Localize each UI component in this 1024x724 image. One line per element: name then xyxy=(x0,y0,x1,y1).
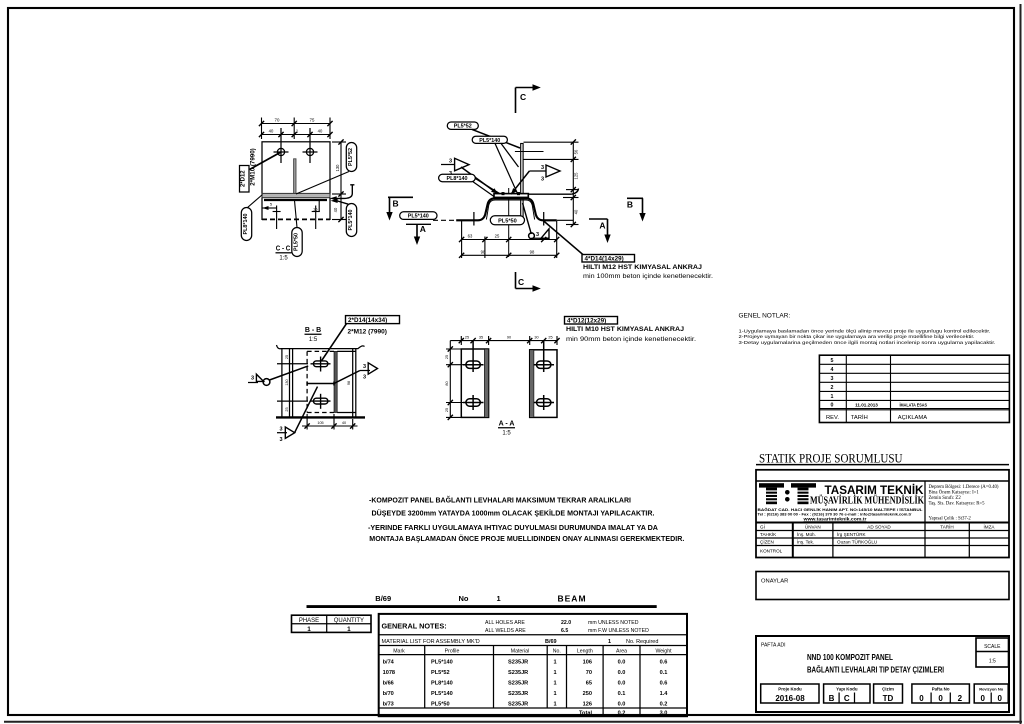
svg-text:11.01.2013: 11.01.2013 xyxy=(855,402,878,407)
svg-text:Yapı Kodu: Yapı Kodu xyxy=(836,687,858,692)
svg-text:SCALE: SCALE xyxy=(984,644,1001,650)
svg-text:GENERAL NOTES:: GENERAL NOTES: xyxy=(382,622,447,631)
svg-text:AÇIKLAMA: AÇIKLAMA xyxy=(898,415,927,421)
svg-text:56: 56 xyxy=(574,149,579,154)
svg-text:2*M12 (7990): 2*M12 (7990) xyxy=(348,329,387,336)
svg-text:-YERINDE FARKLI UYGULAMAYA IHT: -YERINDE FARKLI UYGULAMAYA IHTIYAC DUYUL… xyxy=(368,525,658,532)
svg-text:98: 98 xyxy=(347,381,351,385)
svg-text:65: 65 xyxy=(586,681,592,687)
svg-text:PL5*52: PL5*52 xyxy=(348,148,354,166)
svg-text:25: 25 xyxy=(445,355,449,359)
svg-text:PL5*52: PL5*52 xyxy=(431,670,450,676)
svg-text:İrg ŞENTÜRK: İrg ŞENTÜRK xyxy=(837,531,867,537)
svg-text:1: 1 xyxy=(608,639,611,645)
svg-text:0.1: 0.1 xyxy=(660,670,668,676)
svg-text:1: 1 xyxy=(553,660,556,666)
svg-text:mm F.W UNLESS NOTED: mm F.W UNLESS NOTED xyxy=(588,628,649,634)
svg-text:1078: 1078 xyxy=(383,670,395,676)
svg-text:106: 106 xyxy=(583,660,592,666)
svg-text:B: B xyxy=(627,200,633,210)
svg-text:Bina Önem Katsayısı: I=1: Bina Önem Katsayısı: I=1 xyxy=(929,490,980,496)
svg-text:3: 3 xyxy=(280,437,283,443)
svg-text:0.0: 0.0 xyxy=(618,660,626,666)
svg-text:PL5*140: PL5*140 xyxy=(431,691,453,697)
svg-text:C - C: C - C xyxy=(276,246,291,253)
svg-text:HILTI M10 HST KIMYASAL ANKRAJ: HILTI M10 HST KIMYASAL ANKRAJ xyxy=(566,326,685,333)
svg-text:PL8*140: PL8*140 xyxy=(447,176,468,182)
svg-text:15: 15 xyxy=(313,207,318,212)
svg-text:2*M10 (7990): 2*M10 (7990) xyxy=(250,148,257,186)
svg-text:0: 0 xyxy=(919,694,924,703)
svg-text:B/69: B/69 xyxy=(375,594,391,603)
svg-text:QUANTITY: QUANTITY xyxy=(334,618,364,624)
svg-text:PL8*140: PL8*140 xyxy=(243,214,249,235)
svg-text:70: 70 xyxy=(275,118,280,123)
svg-text:S235JR: S235JR xyxy=(508,670,528,676)
svg-text:B: B xyxy=(393,199,399,209)
svg-text:İnş. Müh.: İnş. Müh. xyxy=(797,531,816,537)
svg-text:0: 0 xyxy=(831,402,834,408)
svg-text:1:5: 1:5 xyxy=(309,337,318,343)
svg-text:PL5*50: PL5*50 xyxy=(431,702,450,708)
svg-text:Material: Material xyxy=(511,648,529,654)
svg-text:40: 40 xyxy=(269,129,274,134)
svg-text:75: 75 xyxy=(310,118,315,123)
svg-text:22.0: 22.0 xyxy=(561,620,571,626)
svg-text:0: 0 xyxy=(980,694,985,703)
svg-text:İMZA: İMZA xyxy=(984,523,996,529)
svg-text:A: A xyxy=(599,221,605,231)
svg-text:40: 40 xyxy=(318,129,323,134)
svg-text:63: 63 xyxy=(468,234,473,239)
svg-text:Profile: Profile xyxy=(445,648,460,654)
svg-text:BEAM: BEAM xyxy=(558,594,587,604)
svg-text:PL5*140: PL5*140 xyxy=(348,210,354,231)
svg-text:PL5*50: PL5*50 xyxy=(498,219,517,225)
svg-text:0.0: 0.0 xyxy=(618,702,626,708)
svg-text:1: 1 xyxy=(553,702,556,708)
svg-text:Mark: Mark xyxy=(393,648,405,654)
svg-text:PL8*140: PL8*140 xyxy=(431,681,453,687)
svg-text:40: 40 xyxy=(342,421,346,425)
svg-text:90: 90 xyxy=(507,336,511,340)
svg-text:125: 125 xyxy=(574,172,579,180)
svg-text:1: 1 xyxy=(307,626,311,633)
svg-text:130: 130 xyxy=(335,164,340,172)
svg-text:3: 3 xyxy=(280,427,283,433)
svg-text:TARİH: TARİH xyxy=(940,523,953,529)
svg-text:ALL WELDS ARE: ALL WELDS ARE xyxy=(485,628,526,634)
svg-text:3: 3 xyxy=(363,375,366,381)
svg-text:PL5*52: PL5*52 xyxy=(454,124,472,130)
svg-text:MÜŞAVİRLİK MÜHENDİSLİK: MÜŞAVİRLİK MÜHENDİSLİK xyxy=(810,493,924,506)
svg-text:2: 2 xyxy=(831,385,834,391)
svg-text:STATIK PROJE SORUMLUSU: STATIK PROJE SORUMLUSU xyxy=(759,451,903,466)
svg-text:TARİH: TARİH xyxy=(851,414,868,421)
svg-text:6.5: 6.5 xyxy=(561,628,568,634)
svg-text:3: 3 xyxy=(251,376,254,382)
svg-text:0: 0 xyxy=(997,694,1002,703)
svg-text:b/73: b/73 xyxy=(383,702,394,708)
svg-text:Area: Area xyxy=(616,648,627,654)
svg-text:Yapısal Çelik : St37-2: Yapısal Çelik : St37-2 xyxy=(929,517,972,522)
svg-text:25: 25 xyxy=(445,408,449,412)
svg-text:ÜNVAN: ÜNVAN xyxy=(805,523,821,529)
svg-text:2: 2 xyxy=(958,694,963,703)
svg-text:b/70: b/70 xyxy=(383,691,394,697)
svg-text:PL5*140: PL5*140 xyxy=(479,138,500,144)
svg-text:80: 80 xyxy=(445,381,449,385)
svg-text:3: 3 xyxy=(541,177,544,183)
svg-text:PHASE: PHASE xyxy=(299,618,319,624)
svg-text:3.0: 3.0 xyxy=(660,710,668,716)
svg-text:1.4: 1.4 xyxy=(660,691,669,697)
svg-text:Zemin Sınıfı: Z2: Zemin Sınıfı: Z2 xyxy=(929,496,962,501)
svg-text:NND 100 KOMPOZIT PANEL: NND 100 KOMPOZIT PANEL xyxy=(807,653,893,662)
svg-text:0.6: 0.6 xyxy=(660,660,668,666)
svg-text:1: 1 xyxy=(553,691,556,697)
svg-text:2*D14(14x34): 2*D14(14x34) xyxy=(348,317,387,324)
svg-text:70: 70 xyxy=(586,670,592,676)
svg-text:0.0: 0.0 xyxy=(618,681,626,687)
svg-text:GENEL NOTLAR:: GENEL NOTLAR: xyxy=(739,313,791,320)
svg-text:S235JR: S235JR xyxy=(508,660,528,666)
svg-text:www.tasarimteknik.com.tr: www.tasarimteknik.com.tr xyxy=(802,516,866,521)
svg-text:4*D14(14x29): 4*D14(14x29) xyxy=(585,256,624,263)
svg-text:0.0: 0.0 xyxy=(618,670,626,676)
svg-text:PAFTA ADI: PAFTA ADI xyxy=(761,643,786,649)
svg-text:1: 1 xyxy=(347,626,351,633)
svg-text:1: 1 xyxy=(831,394,834,400)
svg-text:MATERIAL LIST FOR ASSEMBLY MK': MATERIAL LIST FOR ASSEMBLY MK'D xyxy=(382,639,480,645)
svg-text:b/74: b/74 xyxy=(383,660,395,666)
svg-text:İnş. Tek.: İnş. Tek. xyxy=(797,539,814,545)
svg-text:No: No xyxy=(459,594,469,603)
svg-text:REV.: REV. xyxy=(826,415,839,421)
svg-text:0.1: 0.1 xyxy=(618,691,626,697)
svg-text:A: A xyxy=(420,224,426,234)
svg-text:1:5: 1:5 xyxy=(502,431,511,437)
svg-text:0.2: 0.2 xyxy=(660,702,668,708)
svg-text:0.2: 0.2 xyxy=(618,710,626,716)
svg-text:HILTI M12 HST KIMYASAL ANKRAJ: HILTI M12 HST KIMYASAL ANKRAJ xyxy=(583,264,703,271)
svg-text:250: 250 xyxy=(583,691,592,697)
svg-text:3: 3 xyxy=(831,376,834,382)
svg-text:İMALATA ESAS: İMALATA ESAS xyxy=(900,401,928,407)
svg-text:No.: No. xyxy=(553,648,561,654)
svg-text:1-Uygulamaya baslamadan önce y: 1-Uygulamaya baslamadan önce yerinde ölç… xyxy=(739,328,991,334)
svg-text:Length: Length xyxy=(577,648,593,654)
svg-text:min 90mm beton içinde kenetlen: min 90mm beton içinde kenetlenecektir. xyxy=(566,336,696,343)
svg-text:C: C xyxy=(520,92,526,102)
svg-text:126: 126 xyxy=(583,702,592,708)
svg-text:Proje Kodu: Proje Kodu xyxy=(778,687,802,692)
svg-text:4: 4 xyxy=(831,367,834,373)
svg-text:PL5*140: PL5*140 xyxy=(408,214,429,220)
svg-text:min 100mm beton içinde kenetle: min 100mm beton içinde kenetlenecektir. xyxy=(583,273,713,280)
svg-text:Çizim: Çizim xyxy=(882,687,894,692)
svg-text:No. Required: No. Required xyxy=(626,639,658,645)
svg-text:ALL HOLES ARE: ALL HOLES ARE xyxy=(485,620,525,626)
svg-text:1:5: 1:5 xyxy=(279,256,288,262)
svg-text:5: 5 xyxy=(831,358,834,364)
svg-text:25: 25 xyxy=(285,407,289,411)
svg-text:25: 25 xyxy=(285,355,289,359)
svg-text:2-Projeye uymayan bir nokta ç: 2-Projeye uymayan bir nokta çikar ise uy… xyxy=(739,334,975,340)
svg-text:Pafta No: Pafta No xyxy=(932,687,950,692)
svg-text:1:5: 1:5 xyxy=(989,659,996,665)
svg-text:ONAYLAR: ONAYLAR xyxy=(761,579,788,585)
svg-text:B: B xyxy=(829,694,835,703)
svg-text:Taş. Sis. Dav. Katsayısı: R=5: Taş. Sis. Dav. Katsayısı: R=5 xyxy=(929,502,986,507)
svg-text:DÜŞEYDE 3200mm YATAYDA 1000mm: DÜŞEYDE 3200mm YATAYDA 1000mm OLACAK ŞEK… xyxy=(372,509,655,518)
svg-text:mm UNLESS NOTED: mm UNLESS NOTED xyxy=(588,620,639,626)
svg-text:1: 1 xyxy=(497,594,501,603)
svg-text:40: 40 xyxy=(333,207,338,212)
svg-text:3: 3 xyxy=(449,159,452,165)
svg-text:105: 105 xyxy=(317,421,323,425)
svg-text:MONTAJA BAŞLAMADAN ÖNCE PROJE: MONTAJA BAŞLAMADAN ÖNCE PROJE MUELLIDIND… xyxy=(369,534,684,543)
svg-text:Gİ: Gİ xyxy=(760,523,765,529)
svg-text:BAĞLANTI LEVHALARI TIP DETAY Ç: BAĞLANTI LEVHALARI TIP DETAY ÇIZIMLERI xyxy=(807,664,944,675)
svg-text:40: 40 xyxy=(574,209,579,214)
svg-text:Ouzan TÜRKOĞLU: Ouzan TÜRKOĞLU xyxy=(837,539,877,545)
svg-text:130: 130 xyxy=(285,379,289,385)
svg-text:1: 1 xyxy=(553,681,556,687)
svg-text:-KOMPOZIT PANEL BAĞLANTI LEVH: -KOMPOZIT PANEL BAĞLANTI LEVHALARI MAKSI… xyxy=(369,496,631,505)
svg-text:ÇİZEN: ÇİZEN xyxy=(760,539,774,545)
svg-text:3: 3 xyxy=(363,364,366,370)
svg-text:2*D12: 2*D12 xyxy=(241,170,247,187)
svg-text:35: 35 xyxy=(479,336,483,340)
svg-text:3: 3 xyxy=(536,232,539,238)
svg-text:TD: TD xyxy=(883,694,894,703)
svg-text:25: 25 xyxy=(495,234,500,239)
svg-text:PL5*50: PL5*50 xyxy=(293,233,299,251)
svg-text:4*D12(12x29): 4*D12(12x29) xyxy=(567,318,606,325)
svg-text:C: C xyxy=(844,694,850,703)
svg-text:98: 98 xyxy=(530,249,535,254)
svg-text:3-Detay uygulamalarina geçilme: 3-Detay uygulamalarina geçilmeden önce i… xyxy=(739,340,996,346)
svg-text:A - A: A - A xyxy=(499,421,515,428)
svg-text:Weight: Weight xyxy=(655,648,672,654)
svg-text:C: C xyxy=(518,277,524,287)
svg-text:3: 3 xyxy=(541,165,544,171)
svg-text:0: 0 xyxy=(938,694,943,703)
svg-text:1: 1 xyxy=(553,670,556,676)
svg-text:S235JR: S235JR xyxy=(508,691,528,697)
svg-text:S235JR: S235JR xyxy=(508,702,528,708)
svg-text:2016-08: 2016-08 xyxy=(775,694,805,703)
svg-text:S235JR: S235JR xyxy=(508,681,528,687)
svg-text:PL5*140: PL5*140 xyxy=(431,660,453,666)
svg-text:KONTROL: KONTROL xyxy=(760,549,783,554)
svg-text:B - B: B - B xyxy=(305,327,321,334)
svg-text:25: 25 xyxy=(465,336,469,340)
svg-text:b/66: b/66 xyxy=(383,681,394,687)
svg-text:Deprem Bölgesi: 1.Derece (A=0.: Deprem Bölgesi: 1.Derece (A=0.40) xyxy=(929,485,999,490)
svg-text:B/69: B/69 xyxy=(545,639,557,645)
svg-text:TAHKİK: TAHKİK xyxy=(760,531,777,537)
svg-text:0.6: 0.6 xyxy=(660,681,668,687)
svg-text:25: 25 xyxy=(548,336,552,340)
svg-text:Total: Total xyxy=(579,710,592,716)
svg-text:30: 30 xyxy=(534,336,538,340)
svg-text:98: 98 xyxy=(481,249,486,254)
svg-text:Revizyon No: Revizyon No xyxy=(979,687,1004,692)
svg-text:AD SOYAD: AD SOYAD xyxy=(867,524,891,529)
